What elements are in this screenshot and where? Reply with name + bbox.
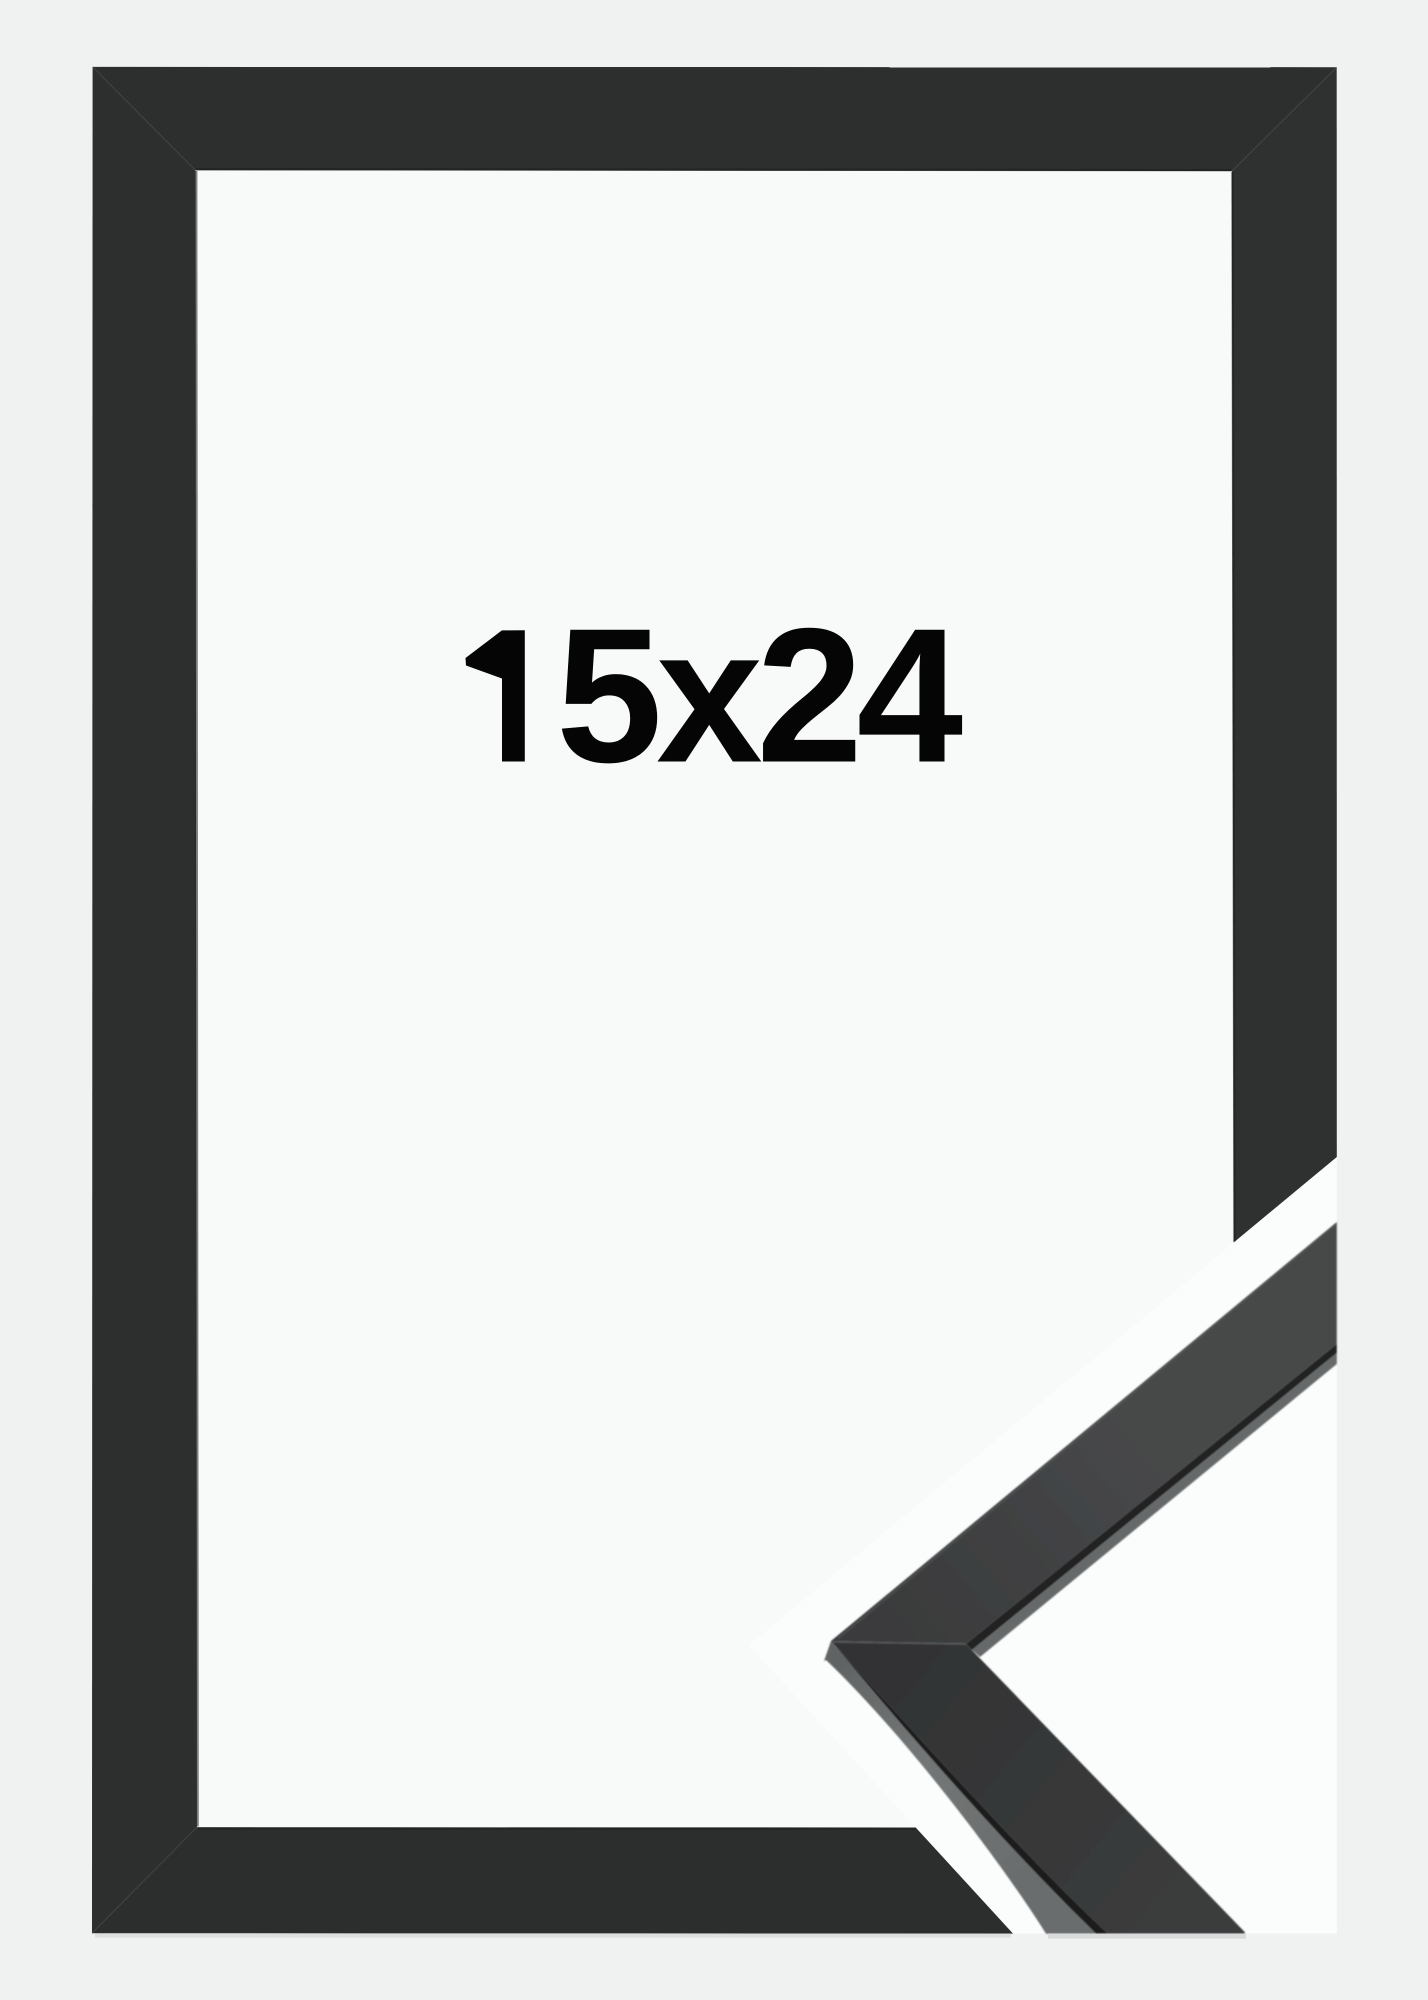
svg-text:5x24: 5x24 (556, 589, 963, 803)
